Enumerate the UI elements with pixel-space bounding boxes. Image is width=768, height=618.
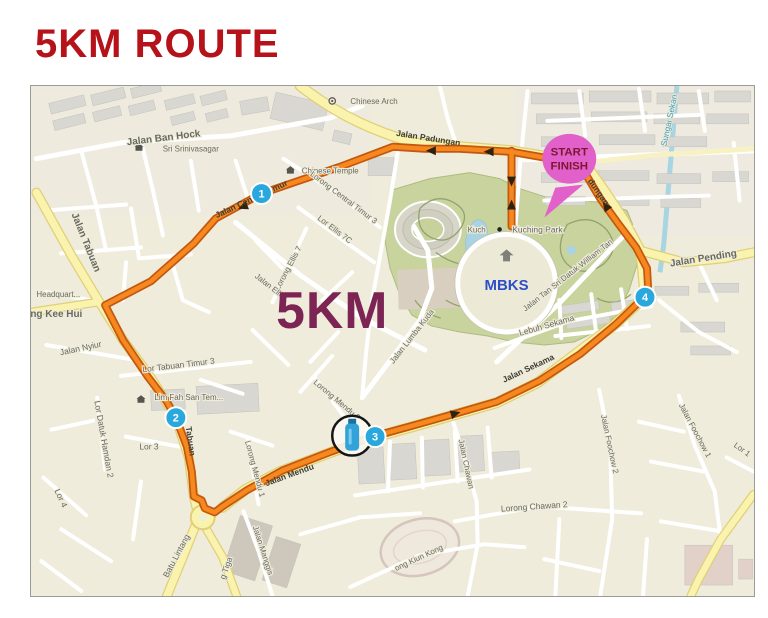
svg-text:4: 4 — [642, 292, 649, 304]
marker-2: 2 — [165, 407, 186, 428]
poi-label: Headquart... — [36, 290, 80, 299]
svg-text:3: 3 — [372, 432, 378, 444]
distance-label: 5KM — [276, 281, 388, 339]
start-label: START — [551, 147, 588, 159]
kuching-park-marker-icon — [497, 227, 502, 232]
chinese-arch-icon — [329, 98, 335, 104]
marker-1: 1 — [251, 183, 272, 204]
route-map: Jalan Ban Hock Sri Srinivasagar Chinese … — [30, 85, 755, 597]
street-label: Lor 3 — [139, 442, 159, 452]
mbks-label: MBKS — [485, 277, 529, 294]
page-title: 5KM ROUTE — [35, 22, 280, 67]
poi-label: Kuching Park — [512, 224, 563, 234]
poi-label: Lim Fah San Tem... — [154, 393, 223, 402]
slide: 5KM ROUTE — [0, 0, 768, 618]
svg-text:2: 2 — [173, 413, 179, 425]
street-label: ng Kee Hui — [31, 309, 83, 320]
poi-label: Kuch — [468, 225, 486, 234]
poi-label: Chinese Arch — [350, 97, 397, 106]
finish-label: FINISH — [551, 161, 588, 173]
poi-label: Sri Srinivasagar — [163, 145, 219, 154]
marker-3: 3 — [365, 426, 386, 447]
marker-4: 4 — [635, 287, 656, 308]
svg-text:1: 1 — [258, 189, 264, 201]
